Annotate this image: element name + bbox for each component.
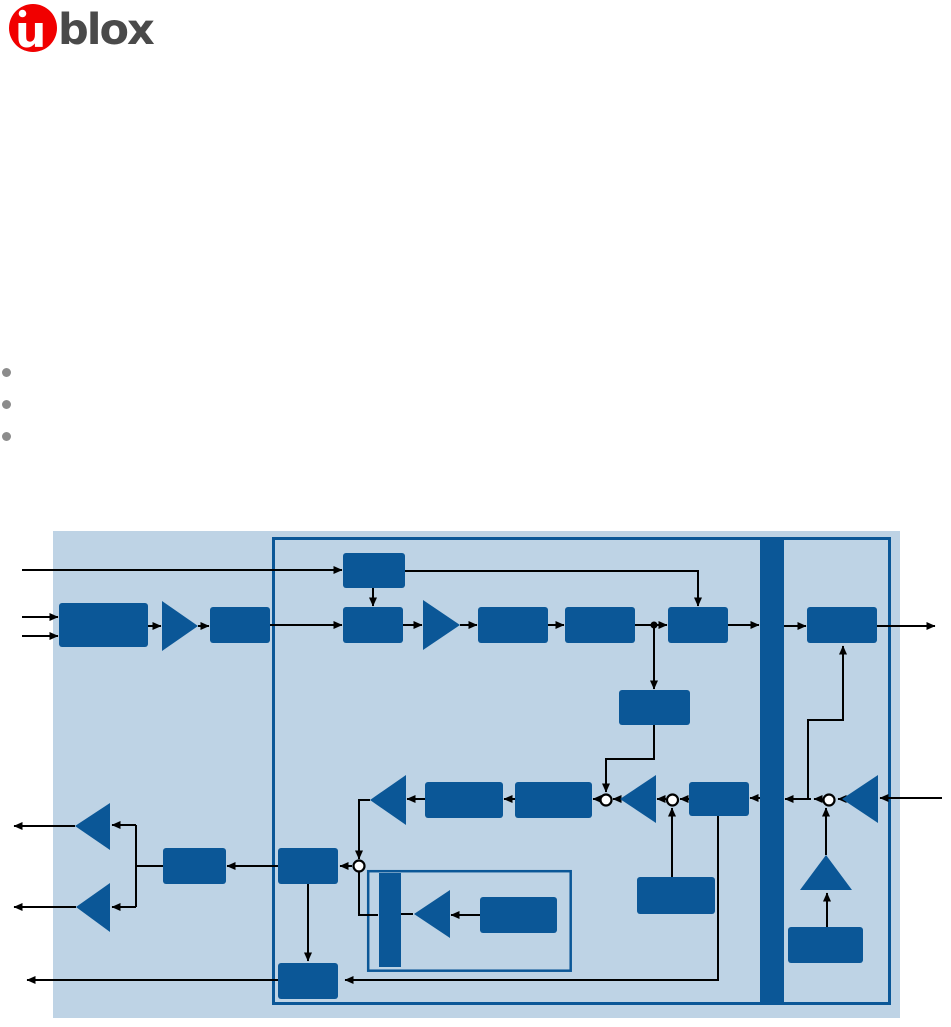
sum-node-1 [601, 795, 612, 806]
block-c1 [637, 877, 715, 914]
block-submodule-inner [480, 897, 557, 933]
block-fb2 [515, 782, 592, 818]
block-a6 [668, 607, 728, 643]
block-diagram [0, 0, 951, 1027]
block-d3 [278, 963, 338, 999]
block-a5 [565, 607, 635, 643]
block-fb1 [425, 782, 503, 818]
block-b1 [619, 690, 690, 725]
bus-bar [760, 539, 784, 1004]
sum-node-3 [824, 795, 835, 806]
document-page: u blox [0, 0, 951, 1027]
sum-node-4 [354, 861, 365, 872]
block-top-control [343, 553, 405, 588]
block-fb3 [689, 782, 749, 816]
block-output-stage [807, 607, 877, 643]
block-d1 [163, 848, 226, 884]
block-a3 [343, 607, 403, 643]
block-d2 [278, 848, 338, 884]
junction-dot [651, 622, 658, 629]
submodule-bar [379, 873, 401, 967]
block-a2 [210, 607, 270, 643]
block-a4 [478, 607, 548, 643]
block-input-stage [59, 603, 148, 647]
block-c2 [788, 927, 863, 963]
sum-node-2 [667, 795, 678, 806]
